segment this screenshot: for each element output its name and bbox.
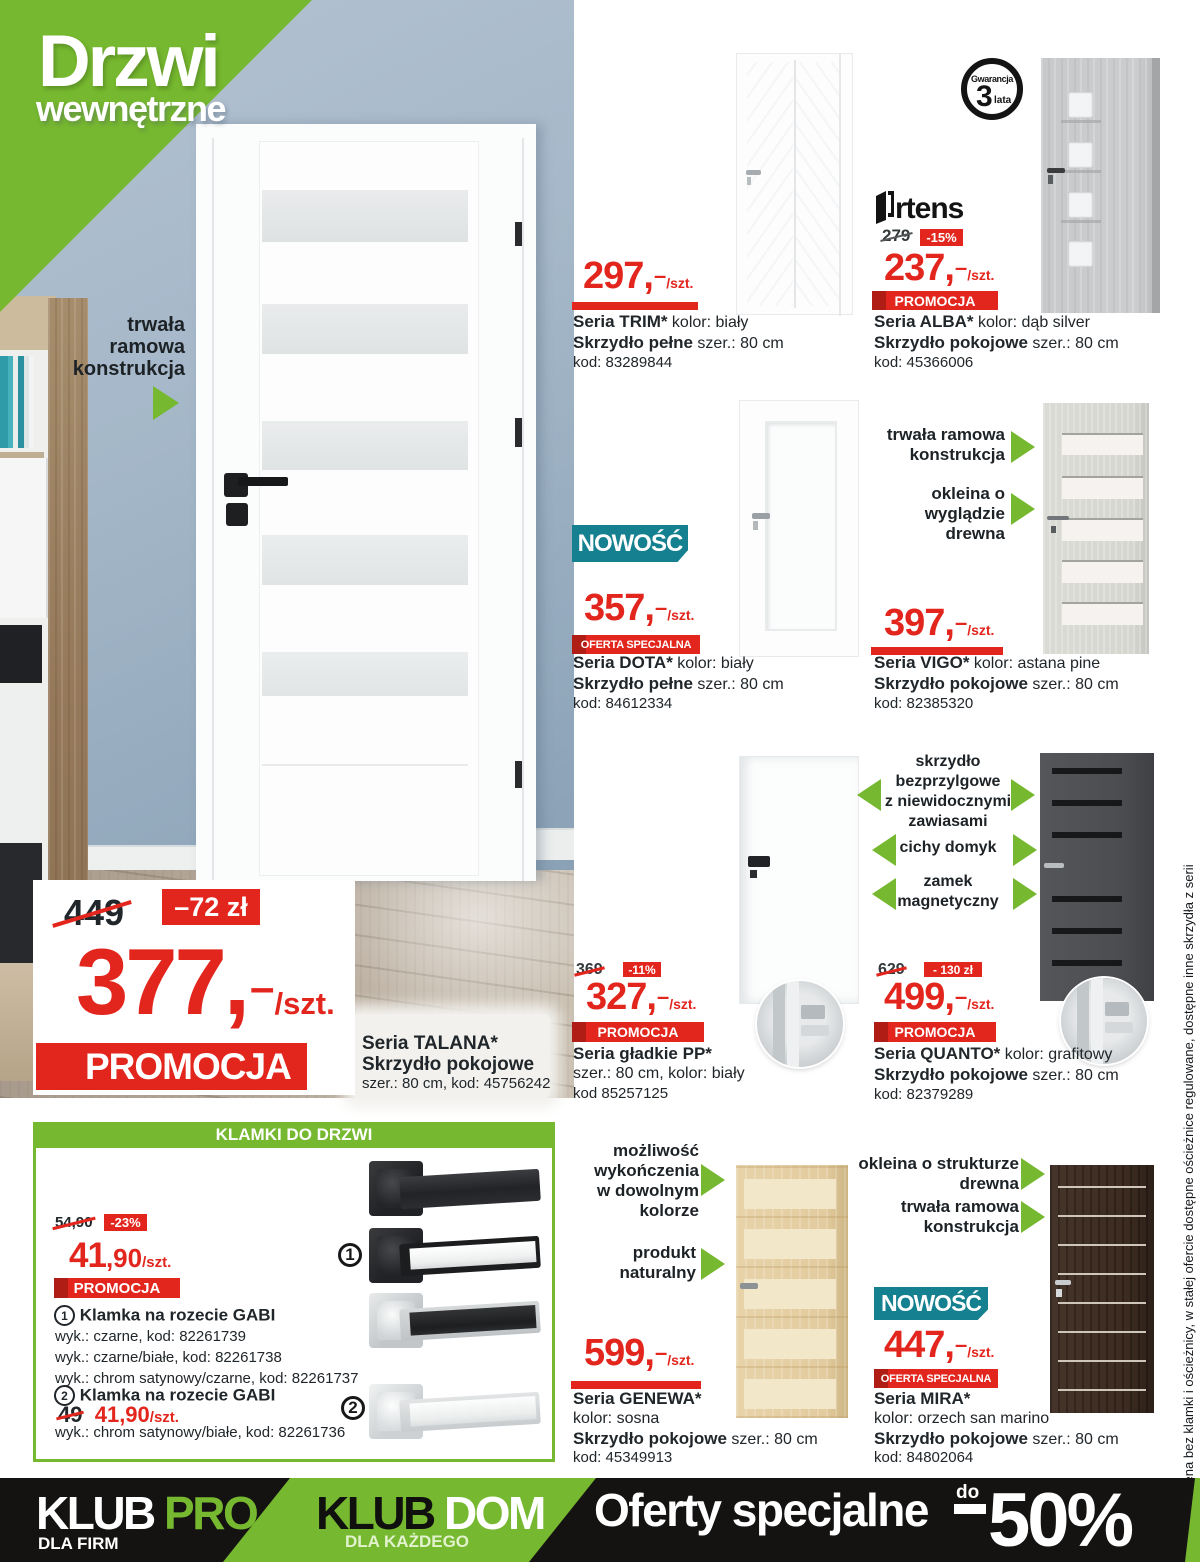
svg-text:rtens: rtens [895,192,964,224]
